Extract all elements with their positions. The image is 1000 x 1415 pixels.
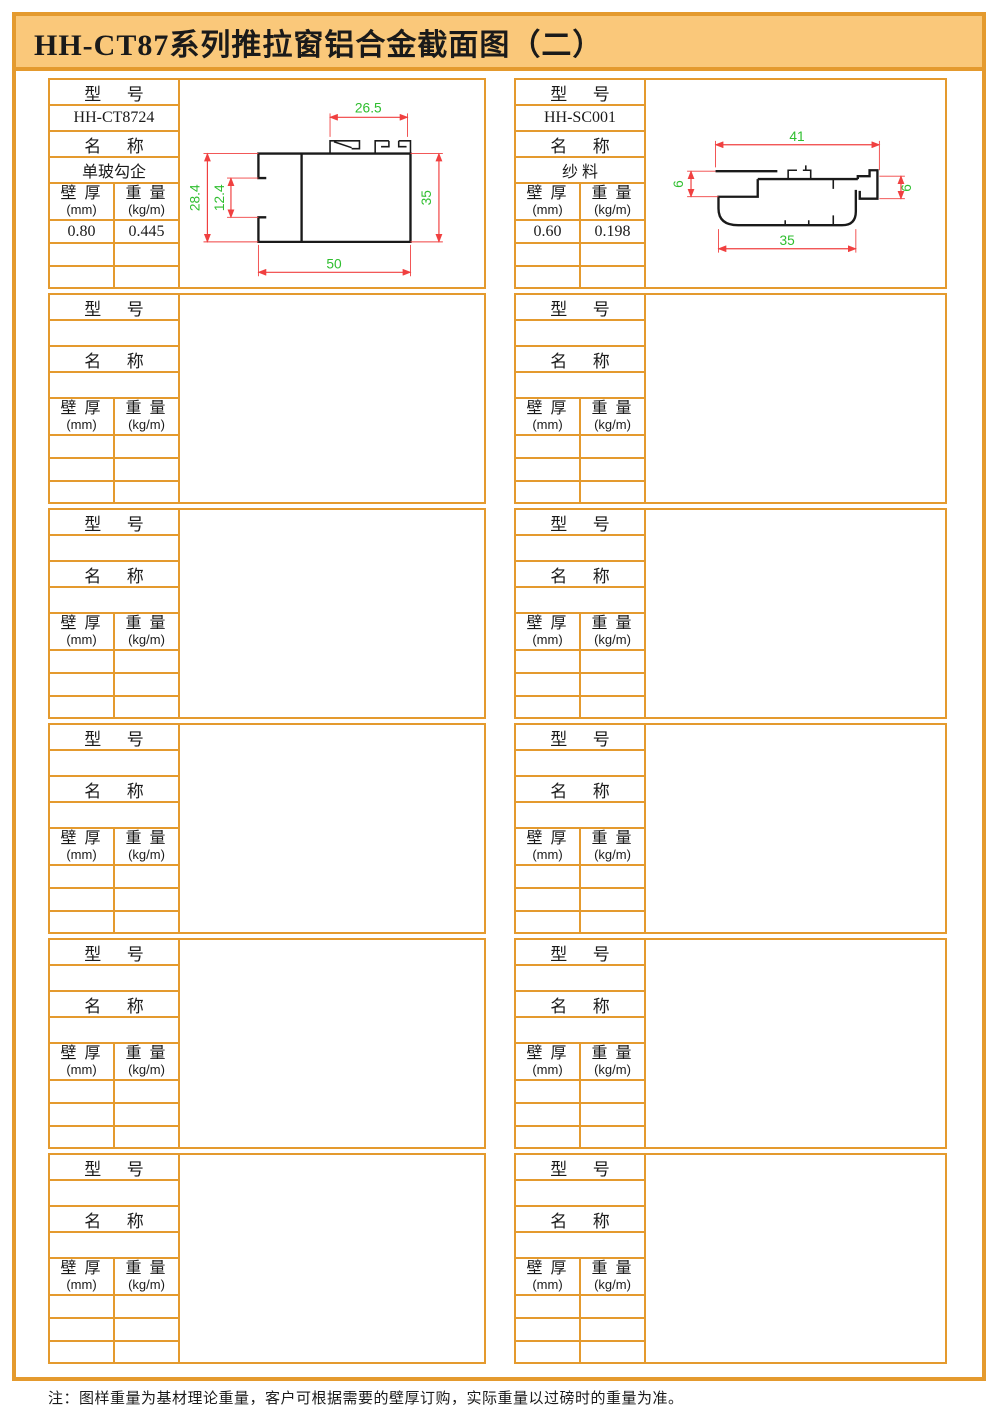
weight-header: 重 量 (kg/m) <box>115 184 178 219</box>
thickness-value: 0.80 <box>50 221 115 242</box>
empty-cell <box>516 1104 581 1125</box>
thickness-title: 壁 厚 <box>526 616 568 633</box>
empty-cell <box>516 1296 581 1317</box>
model-value <box>50 1181 178 1207</box>
empty-row <box>50 244 178 267</box>
thickness-header: 壁 厚 (mm) <box>516 614 581 649</box>
spec-header-row: 壁 厚 (mm) 重 量 (kg/m) <box>50 184 178 221</box>
spec-table: 型 号 名 称 壁 厚 (mm) 重 量 (kg/m) <box>48 723 180 934</box>
empty-cell <box>581 267 644 287</box>
weight-title: 重 量 <box>125 1046 167 1063</box>
empty-cell <box>581 866 644 887</box>
thickness-unit: (mm) <box>532 203 562 217</box>
empty-row <box>50 1319 178 1342</box>
empty-cell <box>581 1127 644 1147</box>
empty-profile-block: 型 号 名 称 壁 厚 (mm) 重 量 (kg/m) <box>514 723 947 934</box>
weight-header: 重 量 (kg/m) <box>115 399 178 434</box>
weight-value: 0.198 <box>581 221 644 242</box>
thickness-header: 壁 厚 (mm) <box>516 1259 581 1294</box>
name-label: 名 称 <box>50 132 178 158</box>
spec-header-row: 壁 厚 (mm) 重 量 (kg/m) <box>50 1259 178 1296</box>
dim-bottom-width: 50 <box>326 256 342 271</box>
empty-profile-block: 型 号 名 称 壁 厚 (mm) 重 量 (kg/m) <box>48 723 486 934</box>
model-label: 型 号 <box>516 510 644 536</box>
empty-row <box>50 674 178 697</box>
drawing-panel-empty <box>646 1153 947 1364</box>
thickness-title: 壁 厚 <box>526 186 568 203</box>
title-bar: HH-CT87系列推拉窗铝合金截面图（二） <box>16 16 982 71</box>
weight-unit: (kg/m) <box>594 418 631 432</box>
model-value: HH-CT8724 <box>50 106 178 132</box>
empty-cell <box>516 651 581 672</box>
empty-cell <box>516 436 581 457</box>
thickness-header: 壁 厚 (mm) <box>50 614 115 649</box>
name-value <box>50 1233 178 1259</box>
empty-cell <box>516 1127 581 1147</box>
weight-title: 重 量 <box>591 186 633 203</box>
model-value <box>50 751 178 777</box>
profile-block-sc001: 型 号 HH-SC001 名 称 纱 料 壁 厚 (mm) 重 量 (kg/m) <box>514 78 947 289</box>
weight-title: 重 量 <box>591 1261 633 1278</box>
spec-table: 型 号 HH-SC001 名 称 纱 料 壁 厚 (mm) 重 量 (kg/m) <box>514 78 646 289</box>
thickness-title: 壁 厚 <box>60 401 102 418</box>
drawing-panel-empty <box>646 293 947 504</box>
name-value <box>50 803 178 829</box>
column-right: 型 号 HH-SC001 名 称 纱 料 壁 厚 (mm) 重 量 (kg/m) <box>514 78 947 1368</box>
weight-unit: (kg/m) <box>128 1278 165 1292</box>
model-value <box>516 966 644 992</box>
profile-top-hook-left <box>330 141 359 154</box>
thickness-title: 壁 厚 <box>526 1046 568 1063</box>
empty-row <box>516 244 644 267</box>
empty-cell <box>115 674 178 695</box>
empty-row <box>516 436 644 459</box>
empty-row <box>516 889 644 912</box>
empty-cell <box>581 697 644 717</box>
weight-unit: (kg/m) <box>128 418 165 432</box>
empty-cell <box>581 482 644 502</box>
spec-header-row: 壁 厚 (mm) 重 量 (kg/m) <box>516 1044 644 1081</box>
profile-top-hook-right <box>375 141 410 154</box>
weight-title: 重 量 <box>125 401 167 418</box>
empty-cell <box>516 1342 581 1362</box>
name-value <box>516 588 644 614</box>
drawing-panel-empty <box>180 938 486 1149</box>
page-title: HH-CT87系列推拉窗铝合金截面图（二） <box>34 20 603 64</box>
empty-row <box>50 697 178 717</box>
empty-cell <box>50 436 115 457</box>
empty-cell <box>50 459 115 480</box>
empty-cell <box>50 1319 115 1340</box>
empty-cell <box>581 1296 644 1317</box>
weight-header: 重 量 (kg/m) <box>581 399 644 434</box>
weight-title: 重 量 <box>591 1046 633 1063</box>
weight-header: 重 量 (kg/m) <box>581 829 644 864</box>
empty-cell <box>516 866 581 887</box>
weight-unit: (kg/m) <box>594 1278 631 1292</box>
empty-row <box>516 912 644 932</box>
name-value <box>516 1018 644 1044</box>
empty-row <box>50 912 178 932</box>
dim-top-width: 41 <box>789 129 804 144</box>
empty-cell <box>115 1127 178 1147</box>
empty-cell <box>50 674 115 695</box>
thickness-header: 壁 厚 (mm) <box>516 399 581 434</box>
empty-row <box>516 482 644 502</box>
empty-cell <box>516 267 581 287</box>
empty-cell <box>50 267 115 287</box>
model-label: 型 号 <box>50 940 178 966</box>
weight-value: 0.445 <box>115 221 178 242</box>
empty-row <box>50 482 178 502</box>
model-value <box>50 321 178 347</box>
name-value <box>50 1018 178 1044</box>
empty-cell <box>581 889 644 910</box>
weight-header: 重 量 (kg/m) <box>115 829 178 864</box>
spec-table: 型 号 HH-CT8724 名 称 单玻勾企 壁 厚 (mm) 重 量 (kg/… <box>48 78 180 289</box>
model-label: 型 号 <box>50 295 178 321</box>
thickness-unit: (mm) <box>532 418 562 432</box>
spec-header-row: 壁 厚 (mm) 重 量 (kg/m) <box>50 1044 178 1081</box>
name-value <box>50 588 178 614</box>
thickness-header: 壁 厚 (mm) <box>516 829 581 864</box>
model-label: 型 号 <box>50 80 178 106</box>
spec-header-row: 壁 厚 (mm) 重 量 (kg/m) <box>516 399 644 436</box>
thickness-header: 壁 厚 (mm) <box>50 399 115 434</box>
empty-row <box>516 1342 644 1362</box>
profile-outline <box>258 154 410 242</box>
empty-cell <box>581 1081 644 1102</box>
name-label: 名 称 <box>516 1207 644 1233</box>
empty-cell <box>50 244 115 265</box>
empty-cell <box>115 1342 178 1362</box>
drawing-panel: 26.5 35 50 28.4 12.4 <box>180 78 486 289</box>
empty-cell <box>516 482 581 502</box>
spec-header-row: 壁 厚 (mm) 重 量 (kg/m) <box>50 829 178 866</box>
column-left: 型 号 HH-CT8724 名 称 单玻勾企 壁 厚 (mm) 重 量 (kg/… <box>48 78 486 1368</box>
thickness-header: 壁 厚 (mm) <box>516 1044 581 1079</box>
weight-title: 重 量 <box>591 401 633 418</box>
weight-header: 重 量 (kg/m) <box>581 1044 644 1079</box>
thickness-title: 壁 厚 <box>526 401 568 418</box>
model-label: 型 号 <box>516 1155 644 1181</box>
model-value <box>516 321 644 347</box>
spec-table: 型 号 名 称 壁 厚 (mm) 重 量 (kg/m) <box>514 293 646 504</box>
spec-header-row: 壁 厚 (mm) 重 量 (kg/m) <box>50 614 178 651</box>
drawing-panel-empty <box>180 508 486 719</box>
name-label: 名 称 <box>516 992 644 1018</box>
weight-unit: (kg/m) <box>594 633 631 647</box>
name-label: 名 称 <box>516 132 644 158</box>
model-label: 型 号 <box>50 1155 178 1181</box>
thickness-title: 壁 厚 <box>60 1046 102 1063</box>
drawing-panel-empty <box>646 938 947 1149</box>
profile-right-hook <box>858 170 878 198</box>
weight-header: 重 量 (kg/m) <box>581 1259 644 1294</box>
empty-cell <box>581 459 644 480</box>
spec-table: 型 号 名 称 壁 厚 (mm) 重 量 (kg/m) <box>514 1153 646 1364</box>
model-value <box>516 1181 644 1207</box>
thickness-unit: (mm) <box>66 203 96 217</box>
empty-cell <box>516 1319 581 1340</box>
empty-row <box>516 866 644 889</box>
thickness-header: 壁 厚 (mm) <box>50 1044 115 1079</box>
dim-left-height: 6 <box>671 180 686 188</box>
empty-cell <box>516 674 581 695</box>
model-label: 型 号 <box>516 80 644 106</box>
empty-row <box>516 1319 644 1342</box>
dim-notch-height: 12.4 <box>212 184 227 211</box>
weight-unit: (kg/m) <box>594 203 631 217</box>
thickness-unit: (mm) <box>66 1063 96 1077</box>
weight-unit: (kg/m) <box>128 848 165 862</box>
model-value <box>516 751 644 777</box>
spec-value-row: 0.60 0.198 <box>516 221 644 244</box>
empty-cell <box>115 697 178 717</box>
empty-row <box>516 697 644 717</box>
spec-table: 型 号 名 称 壁 厚 (mm) 重 量 (kg/m) <box>48 508 180 719</box>
drawing-panel-empty <box>646 723 947 934</box>
dim-top-width: 26.5 <box>355 100 382 115</box>
model-value <box>50 536 178 562</box>
spec-header-row: 壁 厚 (mm) 重 量 (kg/m) <box>516 184 644 221</box>
thickness-title: 壁 厚 <box>60 616 102 633</box>
footer-note: 注：图样重量为基材理论重量，客户可根据需要的壁厚订购，实际重量以过磅时的重量为准… <box>48 1387 684 1408</box>
empty-profile-block: 型 号 名 称 壁 厚 (mm) 重 量 (kg/m) <box>514 508 947 719</box>
weight-title: 重 量 <box>125 1261 167 1278</box>
thickness-unit: (mm) <box>66 1278 96 1292</box>
drawing-panel-empty <box>180 723 486 934</box>
empty-cell <box>50 1342 115 1362</box>
weight-header: 重 量 (kg/m) <box>581 184 644 219</box>
spec-value-row: 0.80 0.445 <box>50 221 178 244</box>
page-frame: HH-CT87系列推拉窗铝合金截面图（二） 型 号 HH-CT8724 名 称 … <box>12 12 986 1381</box>
dim-right-height: 6 <box>899 184 914 192</box>
weight-header: 重 量 (kg/m) <box>115 1259 178 1294</box>
empty-row <box>50 459 178 482</box>
empty-row <box>50 436 178 459</box>
thickness-title: 壁 厚 <box>526 1261 568 1278</box>
empty-row <box>516 1296 644 1319</box>
model-value: HH-SC001 <box>516 106 644 132</box>
empty-cell <box>581 1319 644 1340</box>
profile-top-hooks <box>788 165 811 179</box>
weight-header: 重 量 (kg/m) <box>581 614 644 649</box>
empty-cell <box>581 651 644 672</box>
empty-cell <box>115 651 178 672</box>
empty-cell <box>516 889 581 910</box>
empty-cell <box>516 459 581 480</box>
empty-cell <box>581 674 644 695</box>
empty-cell <box>50 1104 115 1125</box>
weight-unit: (kg/m) <box>128 1063 165 1077</box>
weight-title: 重 量 <box>125 616 167 633</box>
dim-right-height: 35 <box>419 190 434 206</box>
name-label: 名 称 <box>50 777 178 803</box>
empty-row <box>50 889 178 912</box>
empty-profile-block: 型 号 名 称 壁 厚 (mm) 重 量 (kg/m) <box>48 293 486 504</box>
name-value <box>516 373 644 399</box>
empty-profile-block: 型 号 名 称 壁 厚 (mm) 重 量 (kg/m) <box>514 938 947 1149</box>
empty-cell <box>50 1081 115 1102</box>
profile-body-bulb <box>718 179 855 225</box>
model-label: 型 号 <box>516 295 644 321</box>
model-label: 型 号 <box>516 940 644 966</box>
name-label: 名 称 <box>50 1207 178 1233</box>
empty-cell <box>581 1342 644 1362</box>
empty-cell <box>115 1081 178 1102</box>
thickness-unit: (mm) <box>66 848 96 862</box>
empty-row <box>50 651 178 674</box>
empty-cell <box>50 889 115 910</box>
thickness-title: 壁 厚 <box>60 1261 102 1278</box>
thickness-title: 壁 厚 <box>60 186 102 203</box>
spec-table: 型 号 名 称 壁 厚 (mm) 重 量 (kg/m) <box>48 293 180 504</box>
empty-cell <box>581 912 644 932</box>
empty-cell <box>581 436 644 457</box>
profile-drawing-sc001: 41 6 6 35 <box>646 80 945 287</box>
empty-cell <box>516 244 581 265</box>
empty-row <box>50 1127 178 1147</box>
weight-header: 重 量 (kg/m) <box>115 1044 178 1079</box>
empty-row <box>50 267 178 287</box>
weight-header: 重 量 (kg/m) <box>115 614 178 649</box>
thickness-unit: (mm) <box>532 1063 562 1077</box>
weight-title: 重 量 <box>125 186 167 203</box>
name-value: 纱 料 <box>516 158 644 184</box>
weight-unit: (kg/m) <box>594 848 631 862</box>
empty-profile-block: 型 号 名 称 壁 厚 (mm) 重 量 (kg/m) <box>48 1153 486 1364</box>
empty-cell <box>50 1127 115 1147</box>
weight-title: 重 量 <box>591 831 633 848</box>
empty-cell <box>50 651 115 672</box>
empty-profile-block: 型 号 名 称 壁 厚 (mm) 重 量 (kg/m) <box>48 938 486 1149</box>
drawing-panel-empty <box>646 508 947 719</box>
weight-unit: (kg/m) <box>128 203 165 217</box>
empty-row <box>50 1296 178 1319</box>
empty-cell <box>516 697 581 717</box>
model-label: 型 号 <box>516 725 644 751</box>
name-value <box>516 1233 644 1259</box>
empty-row <box>516 1127 644 1147</box>
empty-cell <box>50 866 115 887</box>
empty-profile-block: 型 号 名 称 壁 厚 (mm) 重 量 (kg/m) <box>514 293 947 504</box>
empty-cell <box>50 1296 115 1317</box>
empty-cell <box>115 889 178 910</box>
model-value <box>50 966 178 992</box>
thickness-unit: (mm) <box>66 418 96 432</box>
empty-row <box>50 1342 178 1362</box>
empty-cell <box>115 482 178 502</box>
dim-bottom-width: 35 <box>780 233 796 248</box>
thickness-header: 壁 厚 (mm) <box>50 829 115 864</box>
drawing-panel-empty <box>180 293 486 504</box>
thickness-unit: (mm) <box>532 1278 562 1292</box>
thickness-title: 壁 厚 <box>526 831 568 848</box>
spec-table: 型 号 名 称 壁 厚 (mm) 重 量 (kg/m) <box>48 1153 180 1364</box>
empty-row <box>516 1104 644 1127</box>
empty-row <box>516 459 644 482</box>
spec-table: 型 号 名 称 壁 厚 (mm) 重 量 (kg/m) <box>514 938 646 1149</box>
name-label: 名 称 <box>50 992 178 1018</box>
empty-profile-block: 型 号 名 称 壁 厚 (mm) 重 量 (kg/m) <box>48 508 486 719</box>
thickness-title: 壁 厚 <box>60 831 102 848</box>
name-label: 名 称 <box>50 347 178 373</box>
name-label: 名 称 <box>516 347 644 373</box>
empty-row <box>516 1081 644 1104</box>
model-label: 型 号 <box>50 725 178 751</box>
thickness-header: 壁 厚 (mm) <box>516 184 581 219</box>
name-value <box>516 803 644 829</box>
empty-row <box>516 651 644 674</box>
model-label: 型 号 <box>50 510 178 536</box>
empty-cell <box>581 244 644 265</box>
empty-row <box>50 866 178 889</box>
profile-inner-ticks <box>785 179 833 225</box>
thickness-unit: (mm) <box>532 848 562 862</box>
empty-cell <box>115 1319 178 1340</box>
thickness-header: 壁 厚 (mm) <box>50 184 115 219</box>
empty-cell <box>50 912 115 932</box>
empty-cell <box>115 866 178 887</box>
model-value <box>516 536 644 562</box>
empty-cell <box>115 1296 178 1317</box>
spec-table: 型 号 名 称 壁 厚 (mm) 重 量 (kg/m) <box>514 508 646 719</box>
empty-row <box>50 1104 178 1127</box>
spec-header-row: 壁 厚 (mm) 重 量 (kg/m) <box>516 829 644 866</box>
weight-title: 重 量 <box>591 616 633 633</box>
name-label: 名 称 <box>516 777 644 803</box>
name-value <box>50 373 178 399</box>
weight-unit: (kg/m) <box>128 633 165 647</box>
drawing-panel: 41 6 6 35 <box>646 78 947 289</box>
empty-cell <box>115 436 178 457</box>
empty-cell <box>581 1104 644 1125</box>
profile-block-ct8724: 型 号 HH-CT8724 名 称 单玻勾企 壁 厚 (mm) 重 量 (kg/… <box>48 78 486 289</box>
empty-row <box>516 267 644 287</box>
spec-table: 型 号 名 称 壁 厚 (mm) 重 量 (kg/m) <box>48 938 180 1149</box>
empty-cell <box>516 1081 581 1102</box>
dim-left-height: 28.4 <box>188 184 203 211</box>
thickness-header: 壁 厚 (mm) <box>50 1259 115 1294</box>
empty-cell <box>50 697 115 717</box>
empty-cell <box>115 1104 178 1125</box>
content-area: 型 号 HH-CT8724 名 称 单玻勾企 壁 厚 (mm) 重 量 (kg/… <box>16 71 982 1368</box>
spec-header-row: 壁 厚 (mm) 重 量 (kg/m) <box>50 399 178 436</box>
profile-drawing-ct8724: 26.5 35 50 28.4 12.4 <box>180 80 484 287</box>
empty-cell <box>50 482 115 502</box>
spec-header-row: 壁 厚 (mm) 重 量 (kg/m) <box>516 1259 644 1296</box>
name-label: 名 称 <box>50 562 178 588</box>
empty-cell <box>115 244 178 265</box>
empty-row <box>50 1081 178 1104</box>
thickness-value: 0.60 <box>516 221 581 242</box>
thickness-unit: (mm) <box>532 633 562 647</box>
empty-cell <box>115 459 178 480</box>
empty-profile-block: 型 号 名 称 壁 厚 (mm) 重 量 (kg/m) <box>514 1153 947 1364</box>
name-value: 单玻勾企 <box>50 158 178 184</box>
weight-title: 重 量 <box>125 831 167 848</box>
drawing-panel-empty <box>180 1153 486 1364</box>
empty-cell <box>115 267 178 287</box>
weight-unit: (kg/m) <box>594 1063 631 1077</box>
empty-row <box>516 674 644 697</box>
empty-cell <box>115 912 178 932</box>
spec-header-row: 壁 厚 (mm) 重 量 (kg/m) <box>516 614 644 651</box>
empty-cell <box>516 912 581 932</box>
name-label: 名 称 <box>516 562 644 588</box>
thickness-unit: (mm) <box>66 633 96 647</box>
